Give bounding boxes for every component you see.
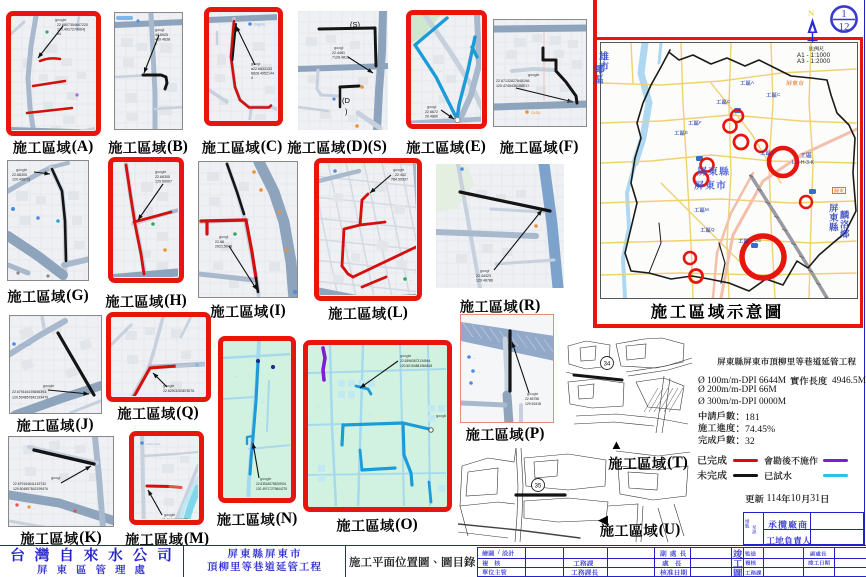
svg-text:Gogoro...: Gogoro... [254,23,268,27]
svg-text:120.49872}: 120.49872} [12,178,31,182]
svg-text:20.4880: 20.4880 [425,115,438,119]
svg-text:...: ... [477,370,480,374]
svg-text:googl: googl [427,105,436,109]
svg-text:129.48786: 129.48786 [476,279,493,283]
svg-text:784.5093?: 784.5093? [391,178,408,182]
svg-text:4: 4 [251,76,253,80]
svg-text:ROAD: ROAD [564,99,574,103]
svg-text:google: google [260,477,271,481]
svg-text:22.62903263878276.: 22.62903263878276. [163,389,195,393]
svg-text:...: ... [316,404,319,408]
svg-text:129.50007: 129.50007 [155,180,172,184]
svg-text:(D: (D [342,96,350,105]
svg-text:...: ... [338,98,341,102]
svg-text:12: 12 [839,21,850,33]
svg-text:22.442: 22.442 [395,173,406,177]
svg-text:...: ... [439,69,442,73]
svg-text:129.504857842199476: 129.504857842199476 [13,487,48,491]
svg-text:22.679164193656393.: 22.679164193656393. [12,390,47,394]
svg-text:1: 1 [841,8,847,20]
svg-text:22.65756: 22.65756 [525,397,539,401]
svg-text:google: google [528,73,539,77]
svg-text:120.504857842199476: 120.504857842199476 [12,396,48,400]
svg-text:...: ... [473,356,476,360]
svg-text:N: N [808,8,815,18]
svg-text:xxxx xxxx: xxxx xxxx [18,343,31,347]
svg-text:a22.6832133: a22.6832133 [251,67,272,71]
svg-text:googl: googl [51,476,60,480]
svg-text:...: ... [368,412,371,416]
svg-text:7128.4815: 7128.4815 [332,56,349,60]
svg-text:22.6713282764819A.: 22.6713282764819A. [496,79,530,83]
svg-text:35: 35 [535,484,542,490]
svg-text:...: ... [409,278,412,282]
svg-text:...: ... [51,31,54,35]
svg-text:...: ... [540,225,543,229]
svg-text:...: ... [33,506,36,510]
svg-text:...: ... [235,374,238,378]
svg-text:...: ... [157,223,160,227]
svg-text:...: ... [261,400,264,404]
svg-text:google: google [43,384,54,388]
svg-text:google: google [16,168,27,172]
svg-text:googl: googl [219,235,228,239]
svg-text:CASA..: CASA.. [531,111,542,115]
svg-text:129.51518: 129.51518 [525,402,541,406]
svg-text:google: google [164,513,175,517]
svg-text:...: ... [344,125,347,129]
svg-text:22.635165755259O4.: 22.635165755259O4. [256,482,287,486]
svg-text:22.6672: 22.6672 [425,110,438,114]
svg-text:googl: googl [480,269,489,273]
svg-text:google: google [436,414,446,418]
svg-text:google: google [393,168,404,172]
svg-text:22.44423: 22.44423 [476,274,491,278]
svg-text:6828.4952144: 6828.4952144 [251,72,274,76]
svg-text:120.49717279844275: 120.49717279844275 [256,487,287,491]
svg-text:22.68: 22.68 [215,240,224,244]
svg-text:22.6807354647220: 22.6807354647220 [57,23,88,27]
svg-text:...: ... [253,422,256,426]
svg-text:googl: googl [155,28,164,32]
svg-text:...: ... [62,216,65,220]
svg-text:google: google [400,354,411,358]
svg-text:22.63963873134944.: 22.63963873134944. [400,359,431,363]
svg-text:120.4745436188E1?: 120.4745436188E1? [496,84,529,88]
svg-text:22.4481: 22.4481 [332,51,345,55]
svg-text:googl: googl [251,62,260,66]
svg-text:googl: googl [334,46,343,50]
svg-text:34: 34 [604,362,611,368]
svg-text:22.43444043403B.: 22.43444043403B. [162,518,189,519]
svg-text:google: google [155,170,166,174]
svg-text:google: google [55,18,66,22]
svg-text:22.68305: 22.68305 [155,175,170,179]
svg-text:...: ... [257,171,260,175]
svg-text:120.50194881984818: 120.50194881984818 [400,364,432,368]
svg-text:22.68305: 22.68305 [12,173,27,177]
svg-text:...: ... [79,510,82,514]
svg-text:xxxxx xxxx: xxxxx xxxx [146,442,161,446]
svg-text:): ) [345,107,348,116]
svg-text:...: ... [339,170,342,174]
svg-text:22.679154641415732.: 22.679154641415732. [13,482,47,486]
svg-text:48.6925: 48.6925 [155,33,168,37]
